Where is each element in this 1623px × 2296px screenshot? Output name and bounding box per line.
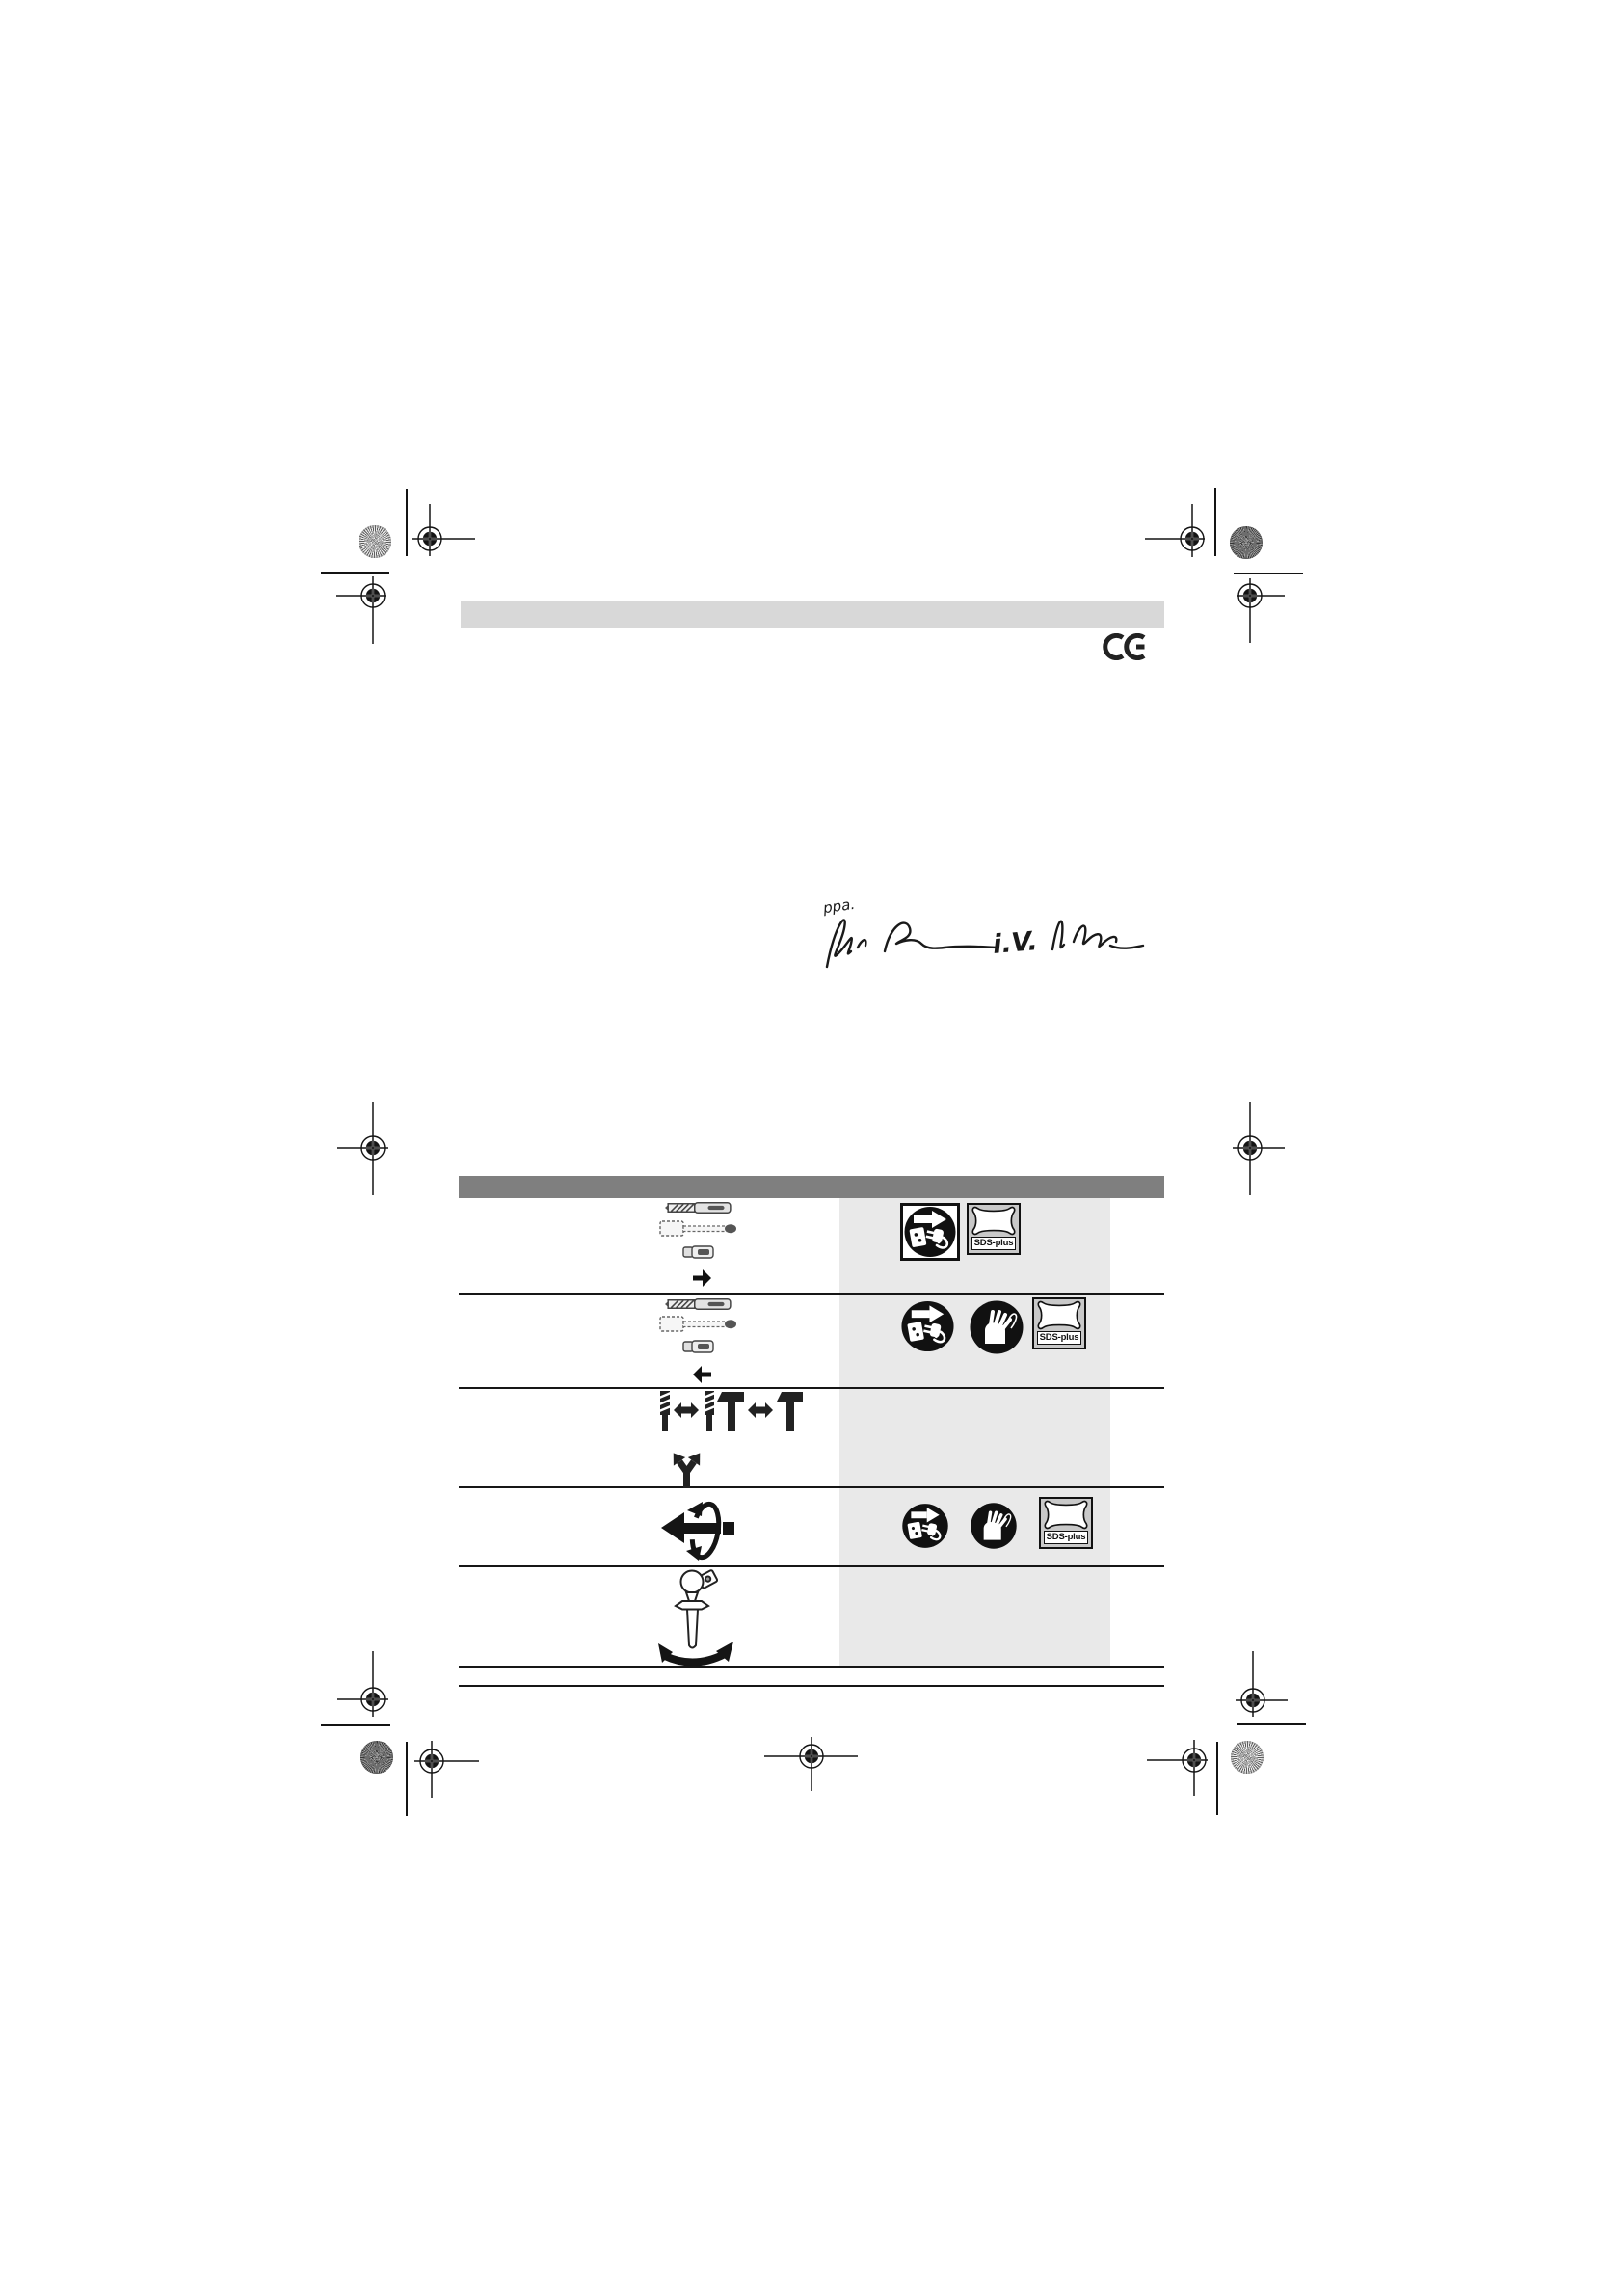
- shaft-rotation-arrow-pictogram: [659, 1498, 738, 1563]
- registration-mark-icon: [414, 1741, 479, 1798]
- table-header-bar: [459, 1176, 1164, 1198]
- table-divider: [459, 1685, 1164, 1687]
- crop-line: [406, 489, 408, 556]
- registration-mark-icon: [764, 1737, 858, 1791]
- registration-mark-icon: [337, 1651, 388, 1717]
- star-target-icon: [359, 525, 391, 558]
- clamping-hide-shape: [1034, 1299, 1084, 1331]
- table-divider: [459, 1486, 1164, 1488]
- manual-page: ppa. i.V.: [0, 0, 1623, 2296]
- unplug-power-icon: [899, 1298, 956, 1354]
- star-target-icon: [1231, 1741, 1264, 1774]
- crop-line: [1216, 1742, 1218, 1815]
- sds-plus-icon: SDS-plus: [1032, 1297, 1086, 1349]
- registration-mark-icon: [1145, 504, 1205, 557]
- table-icon-column: [839, 1198, 1110, 1666]
- table-divider: [459, 1293, 1164, 1295]
- arrow-left-icon: [693, 1366, 711, 1383]
- registration-mark-icon: [337, 1102, 388, 1195]
- table-divider: [459, 1387, 1164, 1389]
- sds-plus-label: SDS-plus: [1037, 1331, 1081, 1345]
- crop-line: [1214, 488, 1216, 556]
- ce-mark-icon: [1093, 633, 1149, 660]
- star-target-icon: [360, 1741, 393, 1774]
- sds-plus-icon: SDS-plus: [967, 1203, 1021, 1255]
- unplug-power-icon: [900, 1502, 950, 1550]
- adapter-bit-pictogram: [682, 1245, 715, 1259]
- sds-plus-icon: SDS-plus: [1039, 1497, 1093, 1549]
- sds-drill-bit-pictogram: [665, 1297, 732, 1311]
- drill-bit-swap-t-handle-pictogram: [659, 1390, 804, 1434]
- sds-drill-bit-pictogram: [665, 1201, 732, 1215]
- registration-mark-icon: [1237, 578, 1285, 643]
- sds-plus-label: SDS-plus: [971, 1237, 1016, 1250]
- signature-block: ppa. i.V.: [800, 890, 1166, 981]
- crop-line: [1237, 1723, 1306, 1725]
- auxiliary-handle-pictogram: [657, 1567, 734, 1668]
- registration-mark-icon: [1147, 1740, 1208, 1796]
- wear-gloves-icon: [970, 1502, 1018, 1550]
- flat-chisel-pictogram: [659, 1316, 738, 1332]
- registration-mark-icon: [336, 576, 386, 644]
- wear-gloves-icon: [969, 1299, 1024, 1355]
- registration-mark-icon: [1236, 1651, 1288, 1717]
- table-divider: [459, 1666, 1164, 1668]
- handwritten-signatures-icon: [800, 890, 1166, 981]
- adapter-bit-pictogram: [682, 1340, 715, 1353]
- crop-line: [406, 1742, 408, 1816]
- sds-plus-label: SDS-plus: [1044, 1531, 1088, 1544]
- crop-line: [321, 1724, 390, 1726]
- registration-mark-icon: [412, 504, 475, 556]
- unplug-power-icon-boxed: [900, 1203, 960, 1261]
- section-title-bar: [461, 601, 1164, 628]
- diverging-arrows-pictogram: [659, 1440, 713, 1488]
- clamping-hide-shape: [969, 1205, 1019, 1237]
- crop-line: [321, 572, 389, 574]
- flat-chisel-pictogram: [659, 1220, 738, 1237]
- table-divider: [459, 1565, 1164, 1567]
- star-target-icon: [1230, 526, 1263, 559]
- arrow-right-icon: [693, 1269, 711, 1287]
- registration-mark-icon: [1233, 1102, 1285, 1195]
- crop-line: [1234, 573, 1303, 574]
- clamping-hide-shape: [1041, 1499, 1091, 1531]
